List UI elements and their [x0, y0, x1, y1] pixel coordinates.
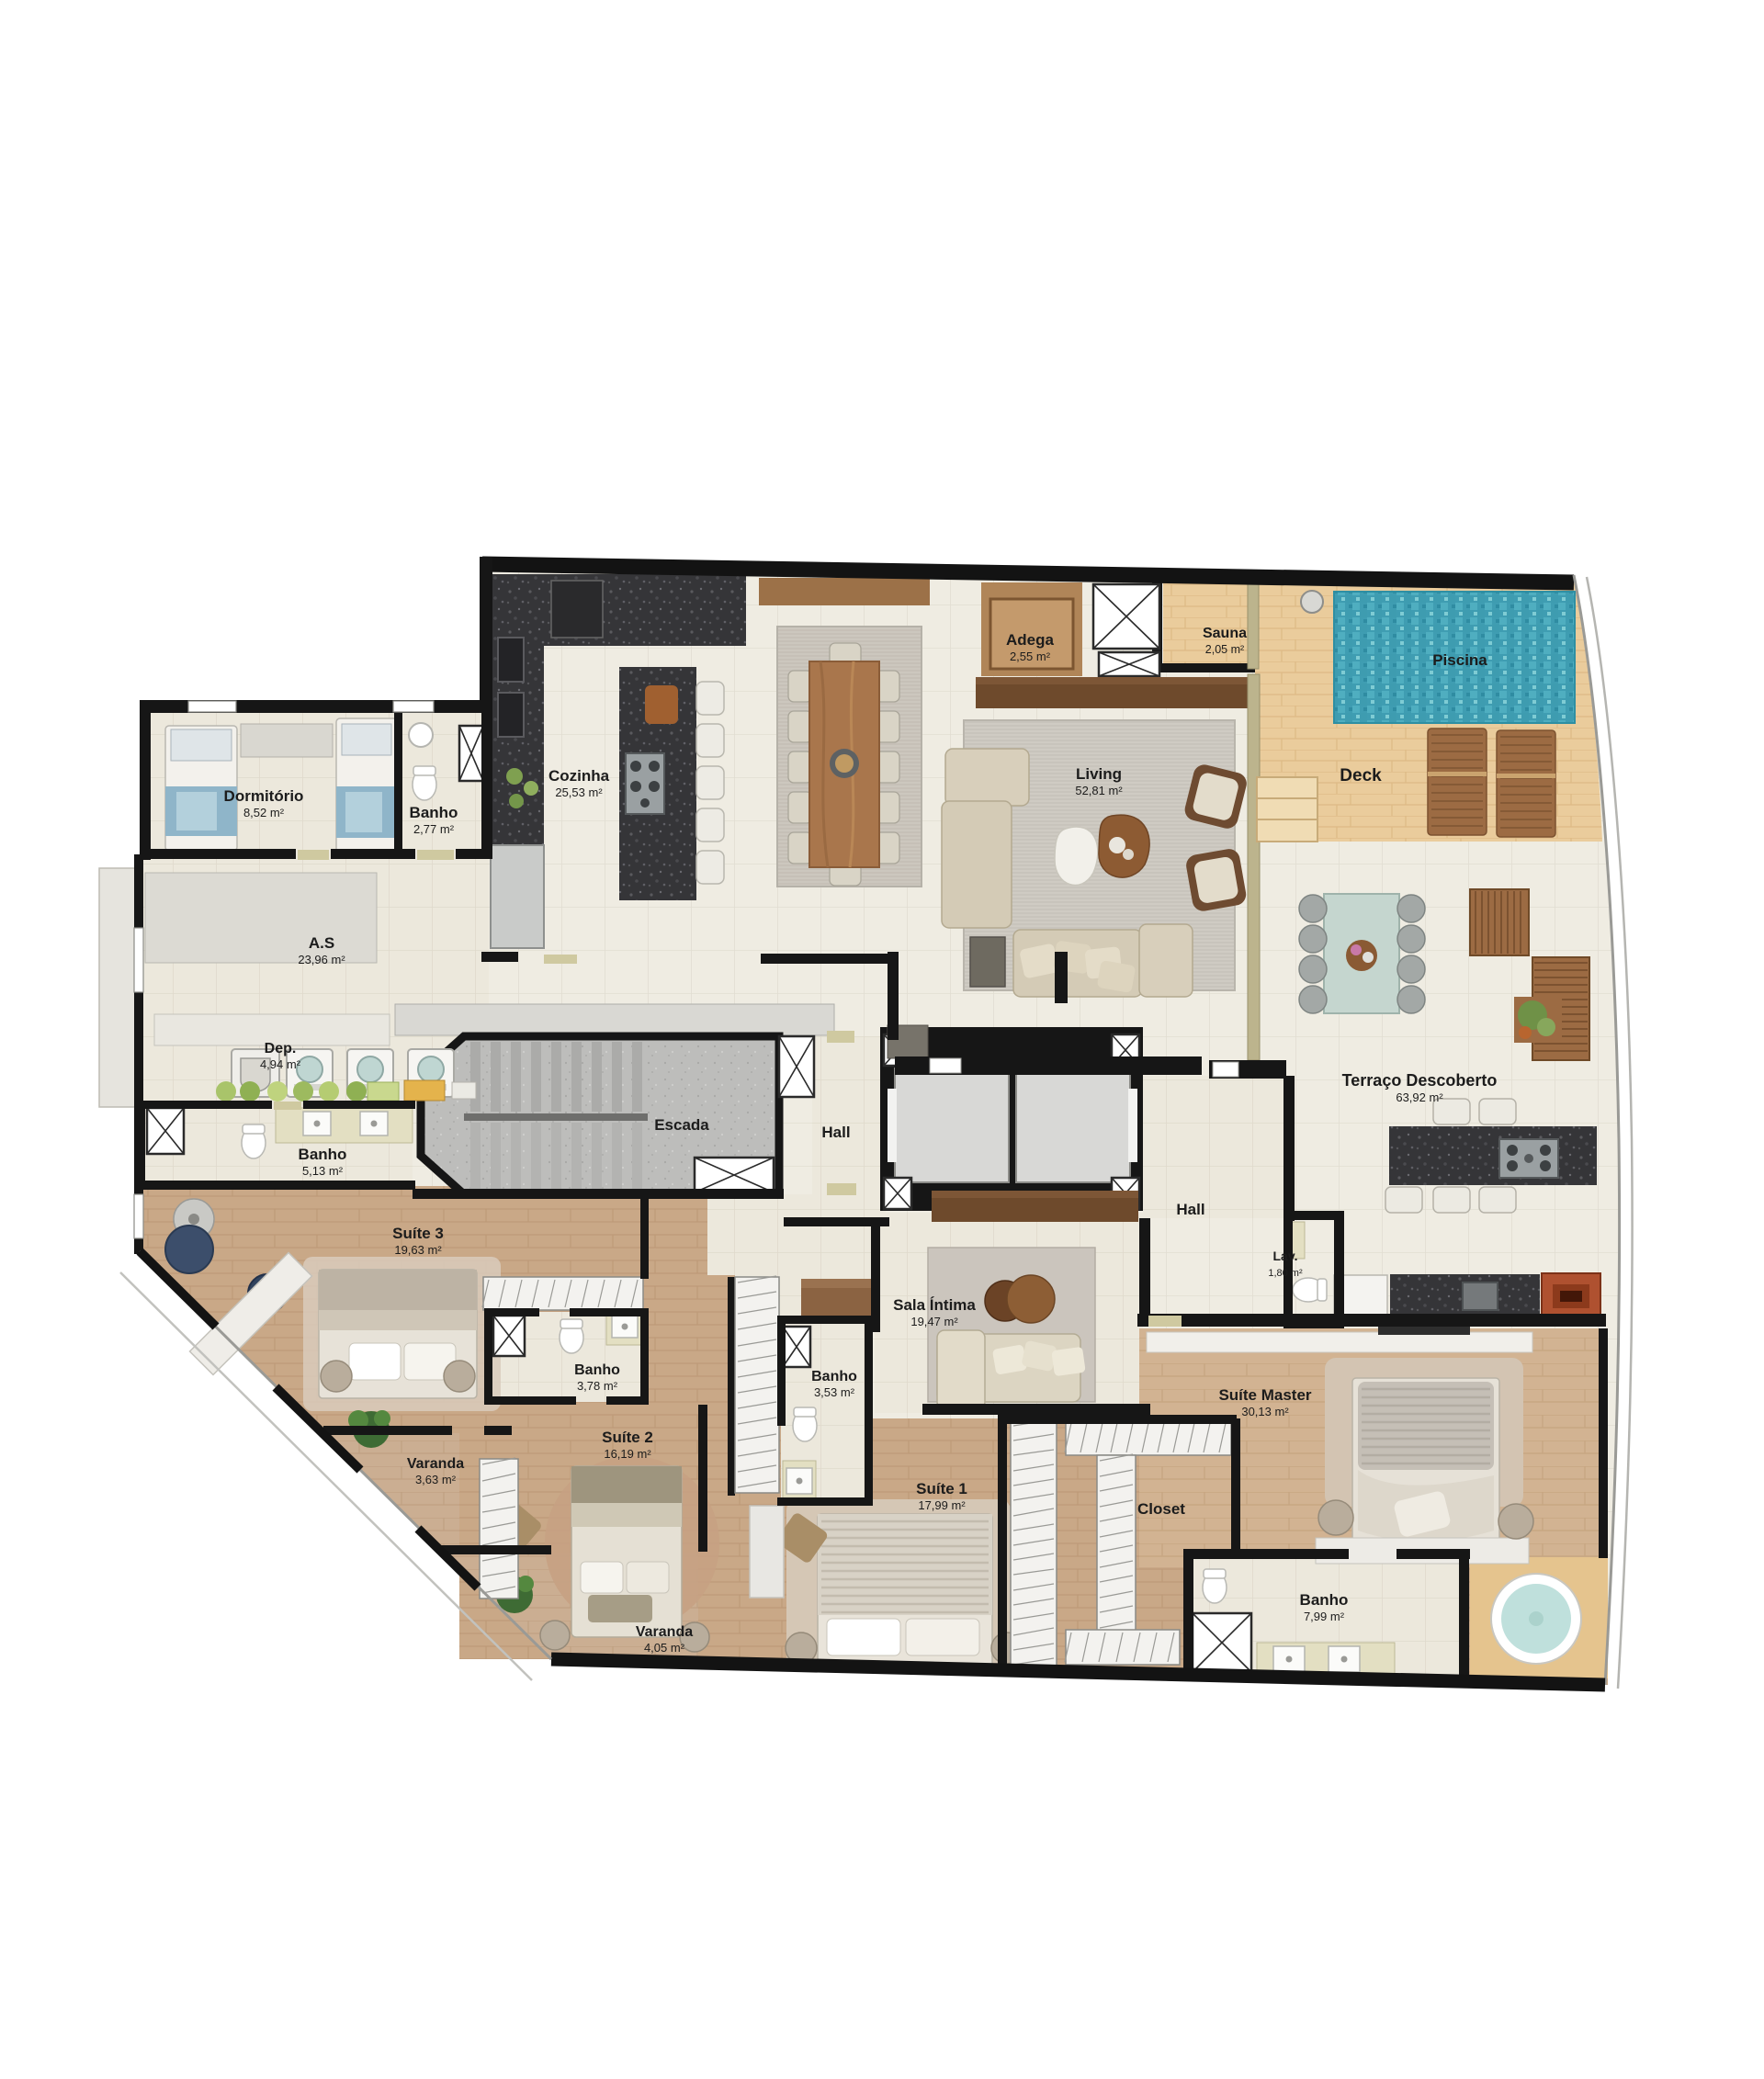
svg-text:Varanda: Varanda	[636, 1624, 693, 1640]
svg-text:Dep.: Dep.	[265, 1041, 297, 1056]
svg-text:Living: Living	[1076, 765, 1122, 783]
svg-text:5,13 m²: 5,13 m²	[302, 1164, 344, 1178]
svg-text:3,53 m²: 3,53 m²	[814, 1385, 855, 1399]
svg-text:1,80 m²: 1,80 m²	[1268, 1268, 1303, 1279]
svg-text:7,99 m²: 7,99 m²	[1304, 1610, 1345, 1623]
svg-text:Adega: Adega	[1006, 631, 1055, 649]
svg-text:23,96 m²: 23,96 m²	[298, 953, 345, 966]
svg-text:Banho: Banho	[299, 1146, 347, 1163]
svg-text:Banho: Banho	[574, 1362, 620, 1378]
svg-text:2,05 m²: 2,05 m²	[1205, 643, 1244, 656]
svg-text:Hall: Hall	[1176, 1201, 1204, 1218]
svg-text:Banho: Banho	[811, 1369, 857, 1384]
svg-text:Sauna: Sauna	[1203, 626, 1247, 641]
svg-text:Dormitório: Dormitório	[224, 787, 304, 805]
svg-text:4,05 m²: 4,05 m²	[644, 1641, 685, 1655]
svg-text:16,19 m²: 16,19 m²	[604, 1447, 651, 1461]
svg-text:19,63 m²: 19,63 m²	[394, 1243, 442, 1257]
svg-text:30,13 m²: 30,13 m²	[1241, 1405, 1289, 1418]
svg-text:Suíte 1: Suíte 1	[916, 1480, 967, 1497]
svg-text:Cozinha: Cozinha	[548, 767, 610, 785]
svg-text:Banho: Banho	[410, 804, 458, 821]
svg-text:Escada: Escada	[654, 1116, 709, 1134]
svg-text:52,81 m²: 52,81 m²	[1075, 784, 1123, 797]
svg-text:25,53 m²: 25,53 m²	[555, 785, 603, 799]
svg-text:8,52 m²: 8,52 m²	[243, 806, 285, 819]
svg-text:Varanda: Varanda	[407, 1456, 464, 1472]
svg-text:17,99 m²: 17,99 m²	[918, 1498, 966, 1512]
svg-text:Piscina: Piscina	[1432, 651, 1487, 669]
svg-text:Banho: Banho	[1300, 1591, 1349, 1609]
svg-text:Suíte Master: Suíte Master	[1218, 1386, 1311, 1404]
svg-text:Hall: Hall	[821, 1124, 850, 1141]
svg-text:2,55 m²: 2,55 m²	[1010, 650, 1051, 663]
svg-text:63,92 m²: 63,92 m²	[1396, 1090, 1443, 1104]
svg-text:19,47 m²: 19,47 m²	[910, 1315, 958, 1328]
svg-text:Deck: Deck	[1340, 766, 1382, 785]
svg-text:A.S: A.S	[309, 934, 334, 952]
svg-text:3,63 m²: 3,63 m²	[415, 1473, 457, 1486]
svg-text:2,77 m²: 2,77 m²	[413, 822, 455, 836]
svg-text:3,78 m²: 3,78 m²	[577, 1379, 618, 1393]
svg-text:Closet: Closet	[1137, 1500, 1185, 1518]
svg-text:Suíte 2: Suíte 2	[602, 1429, 653, 1446]
svg-text:4,94 m²: 4,94 m²	[260, 1057, 301, 1071]
svg-text:Terraço Descoberto: Terraço Descoberto	[1342, 1071, 1498, 1090]
svg-text:Lav.: Lav.	[1273, 1249, 1298, 1263]
svg-text:Sala Íntima: Sala Íntima	[893, 1296, 976, 1314]
svg-text:Suíte 3: Suíte 3	[392, 1225, 444, 1242]
